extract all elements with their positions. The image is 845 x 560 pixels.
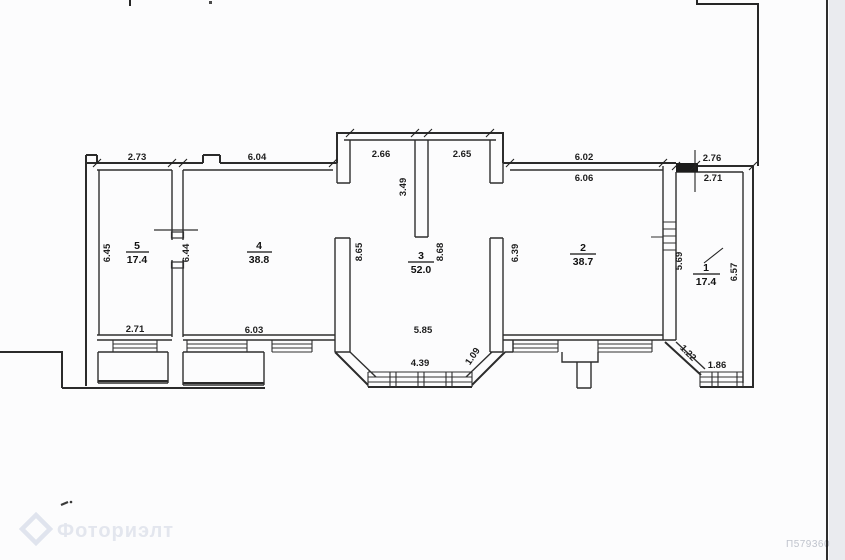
- room5-number: 5: [134, 240, 140, 252]
- room1-area: 17.4: [696, 276, 717, 288]
- dimension-ticks: [93, 129, 757, 192]
- dim-room4-right: 8.65: [354, 242, 365, 261]
- floor-plan-drawing: 2.73 6.04 2.66 2.65 6.02 6.06 2.76 2.71 …: [0, 0, 845, 560]
- dim-hall-bottom: 5.85: [414, 325, 433, 336]
- dim-room5-top: 2.73: [128, 152, 147, 163]
- dim-room4-bottom: 6.03: [245, 325, 264, 336]
- building-outline: [130, 0, 758, 166]
- scan-page-edge: [209, 0, 845, 560]
- dim-room2-left: 6.39: [510, 244, 521, 263]
- room-labels: 5 17.4 4 38.8 3 52.0 2 38.7 1 17.4: [126, 240, 723, 288]
- room5-area: 17.4: [127, 254, 148, 266]
- room2-area: 38.7: [573, 256, 594, 268]
- brand-watermark-text: Фоториэлт: [57, 520, 174, 542]
- dim-bay-window: 4.39: [411, 358, 430, 369]
- room2-number: 2: [580, 242, 586, 254]
- dim-hall-top-right: 2.65: [453, 149, 472, 160]
- dim-room1-right: 6.57: [729, 263, 740, 282]
- dim-room4-top: 6.04: [248, 152, 267, 163]
- dim-room5-left: 6.45: [102, 243, 113, 262]
- dim-room1-left: 5.69: [674, 252, 685, 271]
- dim-hall-top-left: 2.66: [372, 149, 391, 160]
- dim-room1-top-inner: 2.71: [704, 173, 723, 184]
- dim-wall-5-4: 6.44: [181, 243, 192, 262]
- room4-area: 38.8: [249, 254, 270, 266]
- watermark: Фоториэлт П579360: [22, 515, 830, 550]
- dim-room1-top-outer: 2.76: [703, 153, 722, 164]
- brand-logo-diamond-icon: [22, 515, 50, 543]
- dim-room2-top-outer: 6.02: [575, 152, 594, 163]
- dim-room1-window: 1.86: [708, 360, 727, 371]
- scanned-floor-plan-page: 2.73 6.04 2.66 2.65 6.02 6.06 2.76 2.71 …: [0, 0, 845, 560]
- dim-room2-top-inner: 6.06: [575, 173, 594, 184]
- room3-area: 52.0: [411, 264, 432, 276]
- room1-leader-line: [704, 248, 723, 263]
- room1-number: 1: [703, 262, 709, 274]
- dim-room5-bottom: 2.71: [126, 324, 145, 335]
- dim-hall-center: 8.68: [435, 243, 446, 262]
- room3-number: 3: [418, 250, 424, 262]
- dim-hall-stub: 3.49: [398, 178, 409, 197]
- document-id-text: П579360: [786, 539, 830, 550]
- balconies: [98, 352, 598, 388]
- pen-marks: [61, 501, 72, 505]
- room4-number: 4: [256, 240, 262, 252]
